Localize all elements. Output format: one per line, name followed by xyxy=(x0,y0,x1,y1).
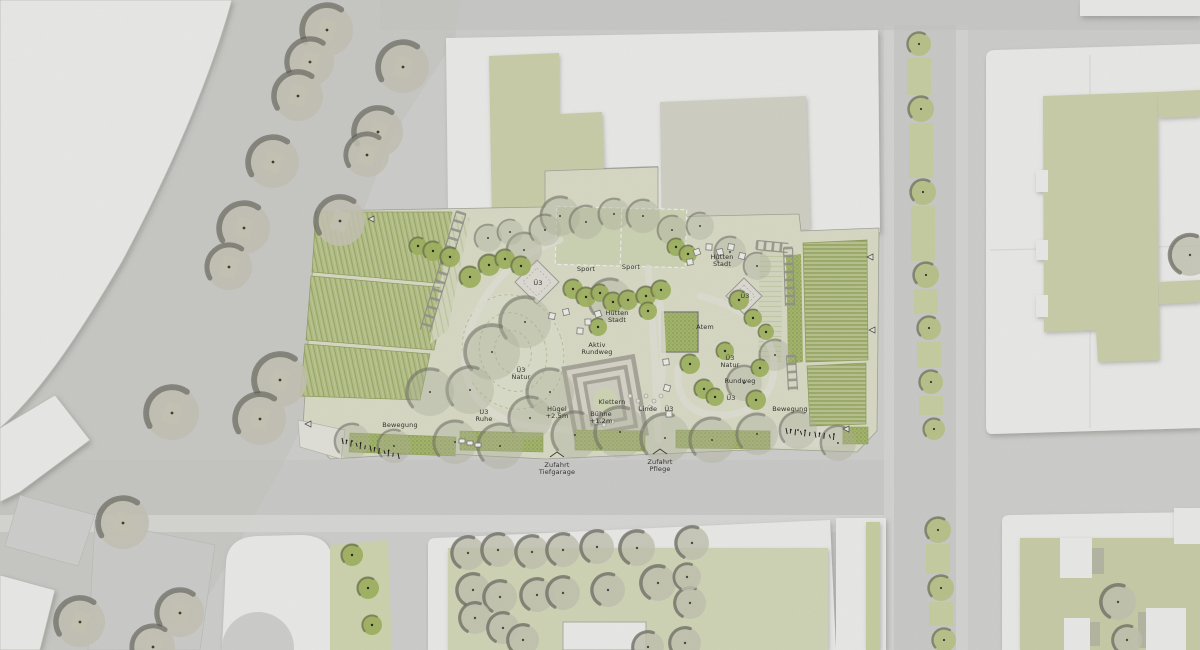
svg-text:Sport: Sport xyxy=(577,265,596,273)
label-buehne: Bühne+1.2m xyxy=(590,410,613,425)
svg-text:Ü3: Ü3 xyxy=(533,278,542,287)
svg-text:ZufahrtTiefgarage: ZufahrtTiefgarage xyxy=(538,461,575,476)
label-rundweg-e: Rundweg xyxy=(724,377,755,385)
label-huetten-stadt-mitte: HüttenStadt xyxy=(605,309,628,324)
svg-text:Hügel+2.5m: Hügel+2.5m xyxy=(546,405,569,420)
site-plan-canvas: SportSportHüttenStadtÜ3Ü3HüttenStadtAtem… xyxy=(0,0,1200,650)
label-sport-1: Sport xyxy=(577,265,596,273)
label-linde: Linde xyxy=(639,405,657,413)
svg-text:Ü3: Ü3 xyxy=(726,393,735,402)
svg-text:Bühne+1.2m: Bühne+1.2m xyxy=(590,410,613,425)
paper-grain xyxy=(0,0,1200,650)
label-sport-2: Sport xyxy=(622,263,641,271)
svg-text:Atem: Atem xyxy=(696,323,714,331)
label-huegel: Hügel+2.5m xyxy=(546,405,569,420)
svg-text:HüttenStadt: HüttenStadt xyxy=(710,253,733,268)
svg-text:Sport: Sport xyxy=(622,263,641,271)
svg-text:Rundweg: Rundweg xyxy=(724,377,755,385)
label-u3-canopy-ne: Ü3 xyxy=(740,291,749,300)
svg-text:HüttenStadt: HüttenStadt xyxy=(605,309,628,324)
label-klettern: Klettern xyxy=(598,398,625,406)
svg-text:Bewegung: Bewegung xyxy=(382,421,417,429)
label-u3-e: Ü3 xyxy=(726,393,735,402)
svg-text:Ü3: Ü3 xyxy=(740,291,749,300)
svg-text:ZufahrtPflege: ZufahrtPflege xyxy=(647,458,673,473)
svg-text:Klettern: Klettern xyxy=(598,398,625,406)
label-u3-stage: Ü3 xyxy=(664,404,673,413)
label-atem: Atem xyxy=(696,323,714,331)
svg-text:Bewegung: Bewegung xyxy=(772,405,807,413)
label-huetten-stadt-ne: HüttenStadt xyxy=(710,253,733,268)
svg-text:Linde: Linde xyxy=(639,405,657,413)
label-bewegung-e: Bewegung xyxy=(772,405,807,413)
label-u3-canopy-w: Ü3 xyxy=(533,278,542,287)
label-bewegung-w: Bewegung xyxy=(382,421,417,429)
svg-text:Ü3: Ü3 xyxy=(664,404,673,413)
